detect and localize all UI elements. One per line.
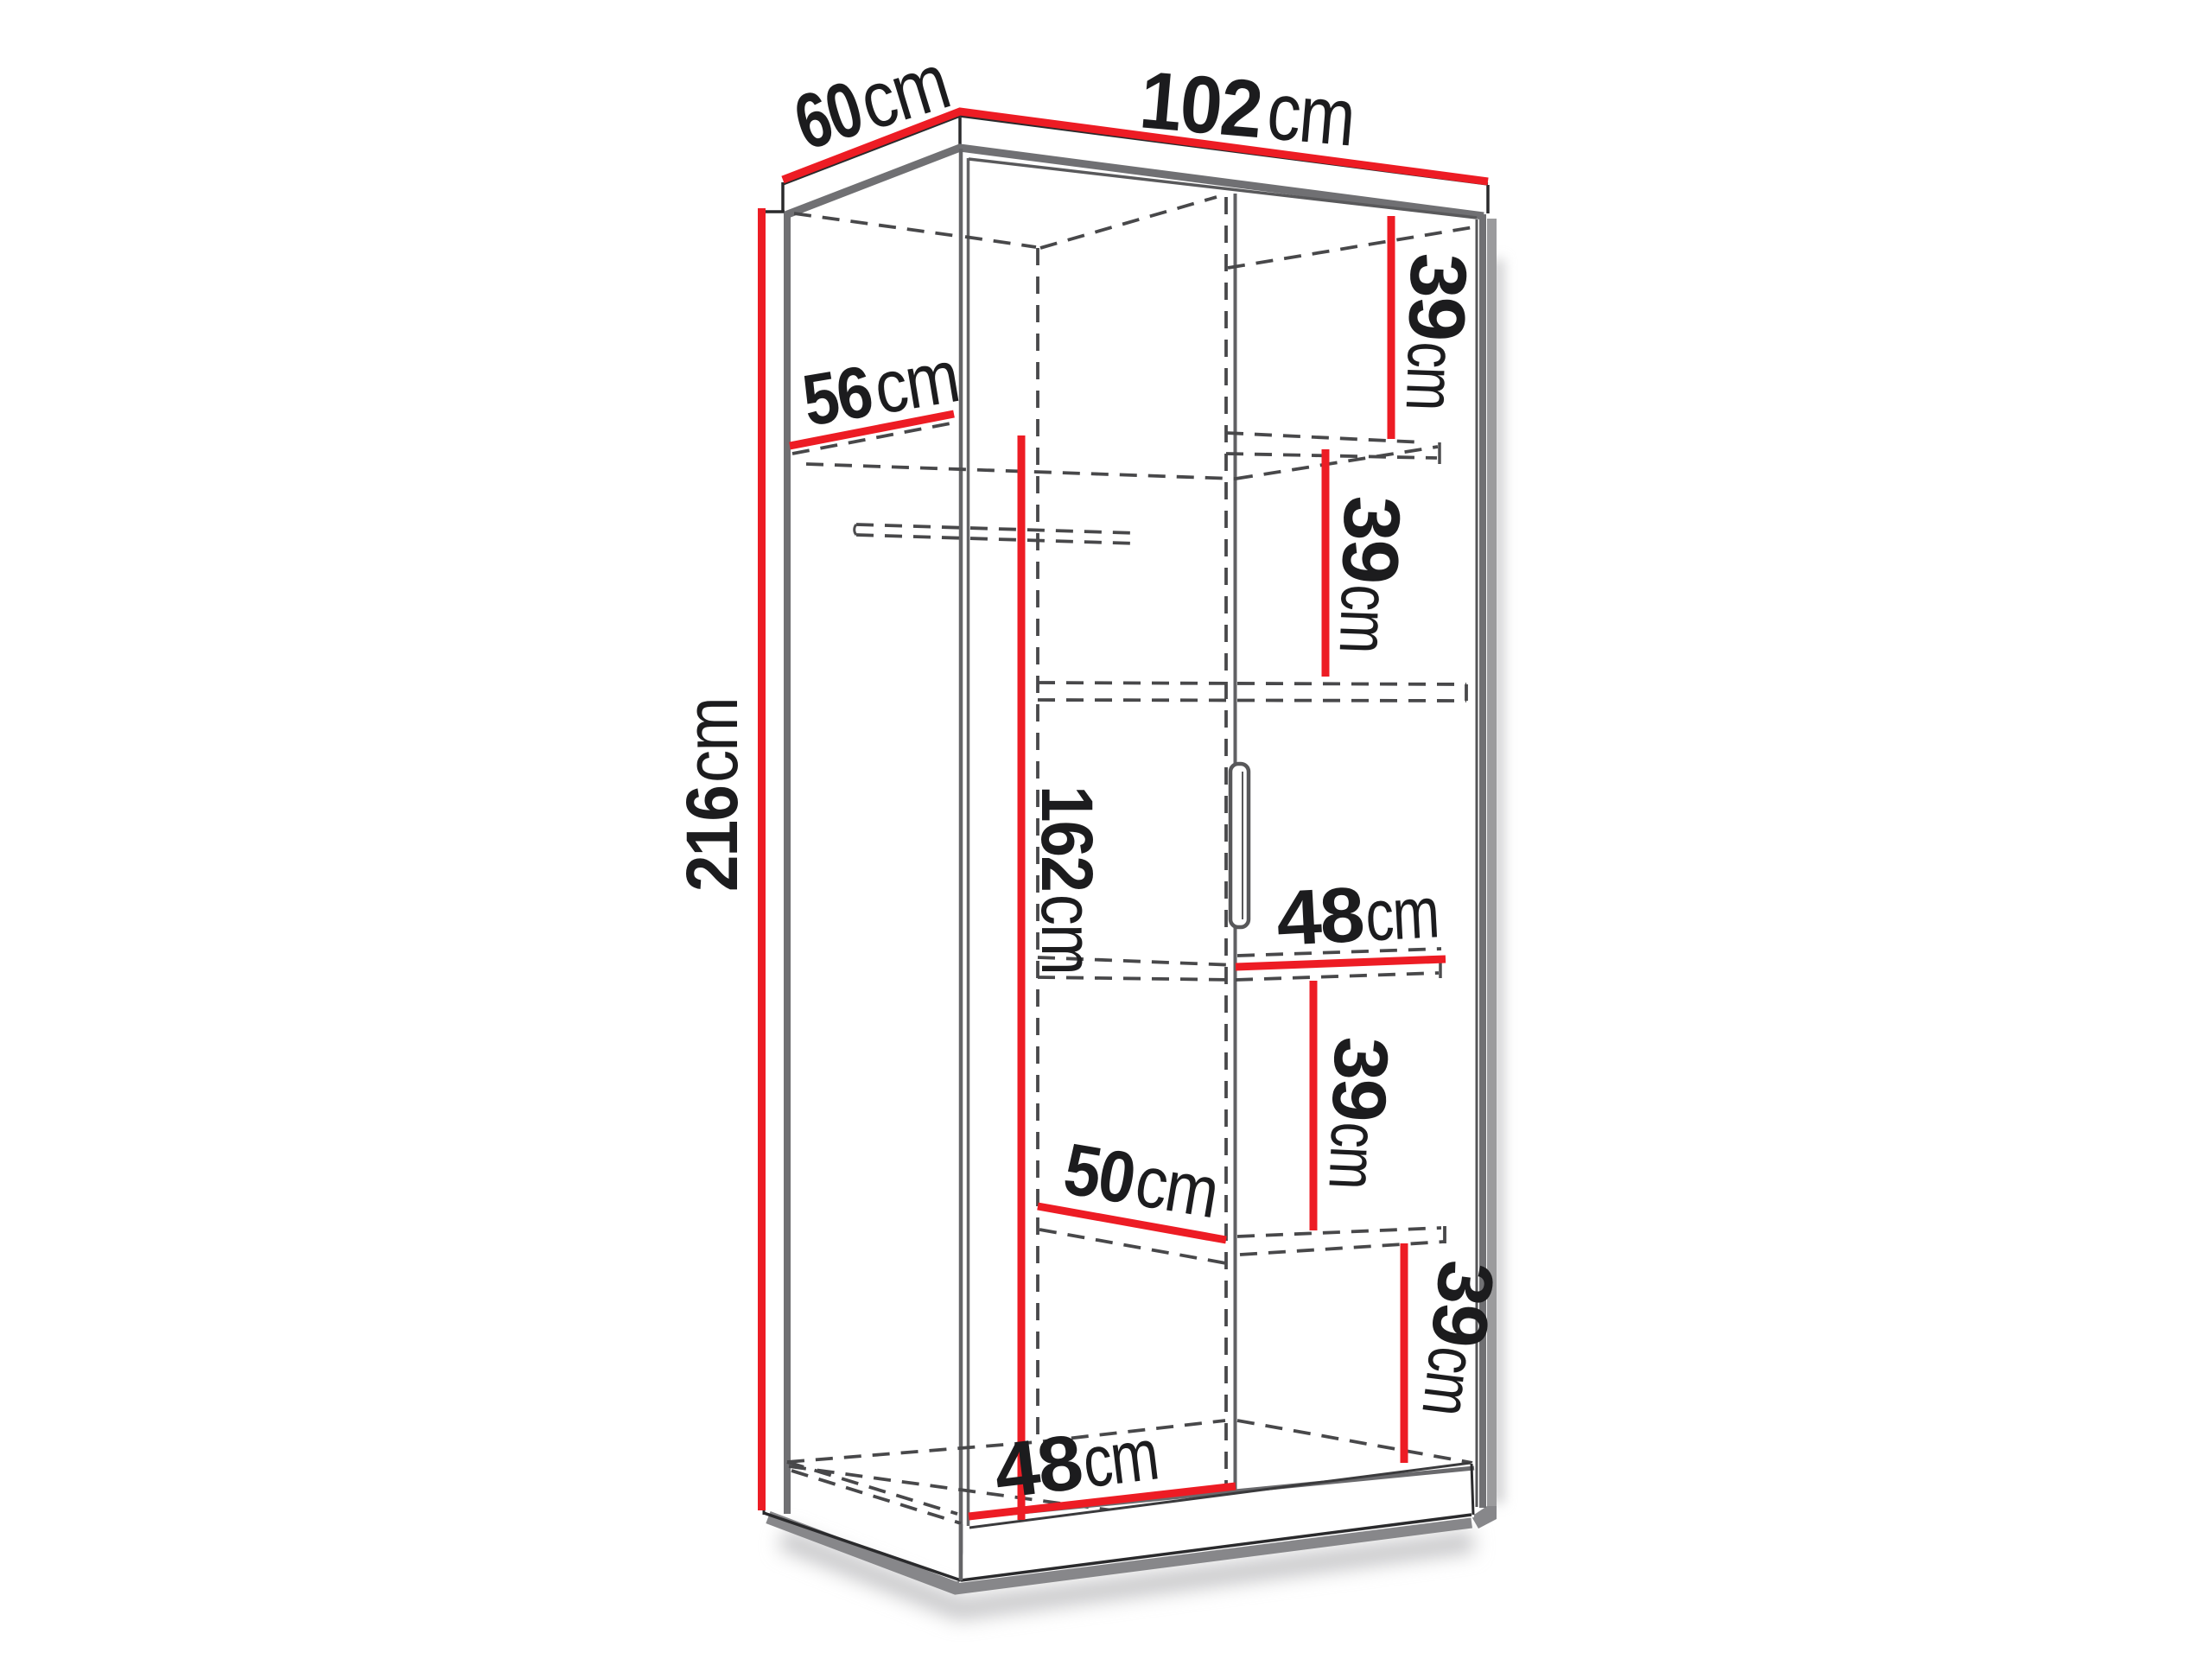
svg-text:cm: cm (1026, 894, 1109, 974)
svg-text:39: 39 (1392, 251, 1483, 340)
svg-text:216: 216 (671, 786, 753, 892)
svg-text:cm: cm (1363, 871, 1440, 956)
svg-text:39: 39 (1316, 1035, 1405, 1122)
svg-text:39: 39 (1325, 494, 1416, 583)
svg-text:cm: cm (1392, 340, 1471, 410)
svg-text:cm: cm (1325, 583, 1405, 653)
svg-text:162: 162 (1027, 785, 1108, 891)
svg-text:cm: cm (1264, 65, 1358, 162)
svg-text:48: 48 (1274, 872, 1365, 963)
svg-text:cm: cm (1408, 1343, 1492, 1419)
svg-text:cm: cm (1078, 1413, 1162, 1503)
svg-text:cm: cm (868, 334, 964, 430)
svg-text:56: 56 (797, 350, 876, 442)
svg-text:cm: cm (671, 698, 753, 783)
svg-text:102: 102 (1136, 54, 1265, 155)
svg-text:cm: cm (1314, 1121, 1393, 1190)
svg-text:cm: cm (1130, 1140, 1224, 1233)
svg-text:48: 48 (989, 1419, 1085, 1515)
svg-text:50: 50 (1058, 1128, 1140, 1219)
svg-text:39: 39 (1414, 1256, 1510, 1351)
